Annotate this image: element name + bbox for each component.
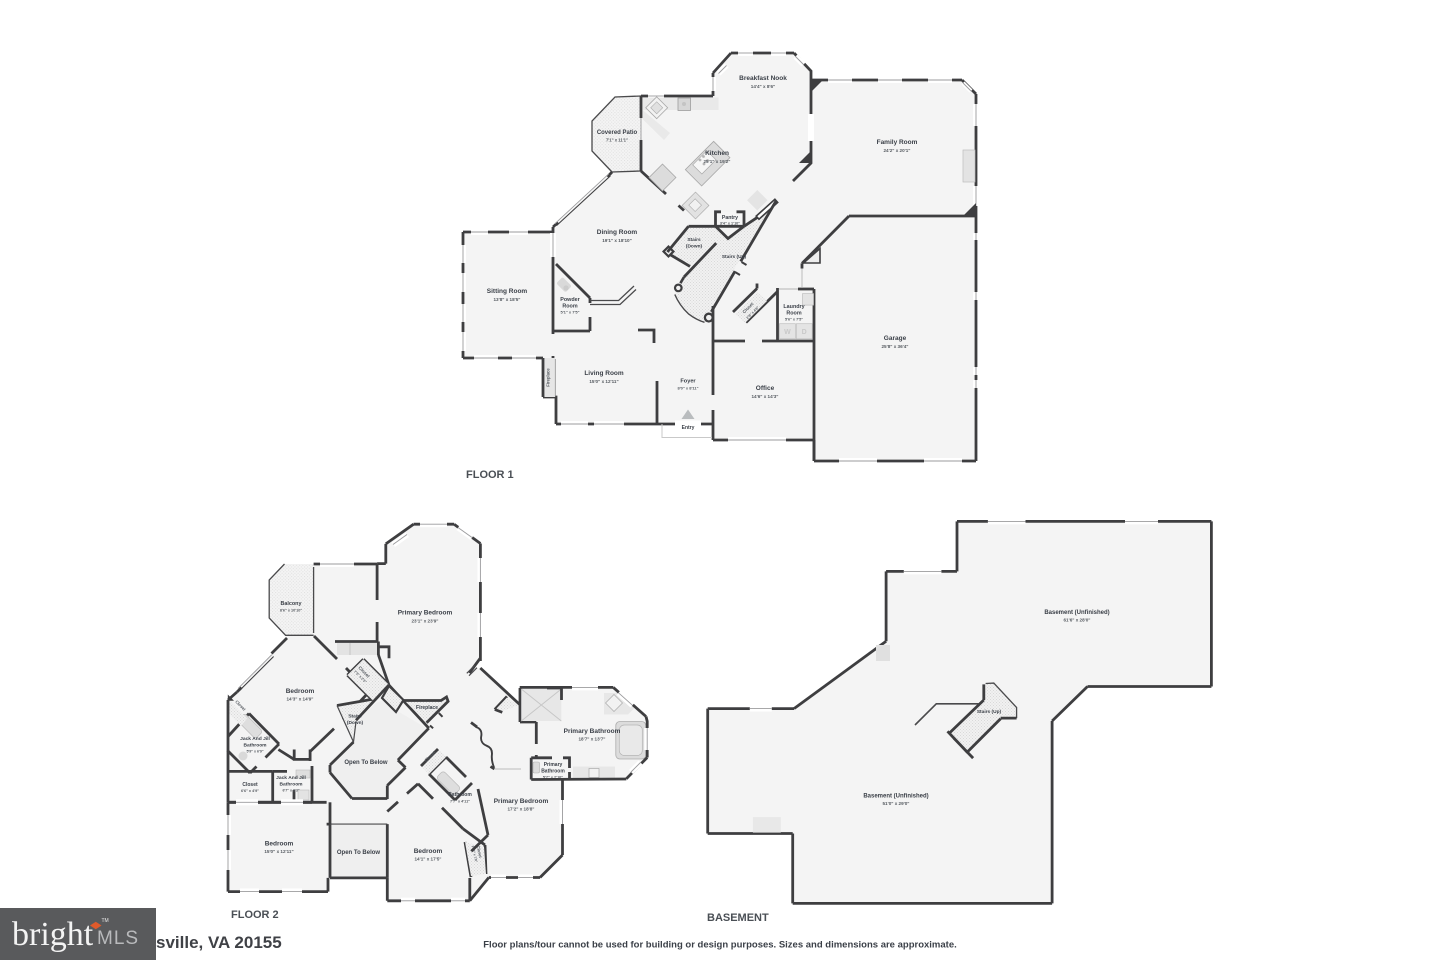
svg-text:Balcony: Balcony — [281, 601, 302, 607]
svg-text:Closet: Closet — [242, 782, 258, 788]
svg-text:8'6" x 10'10": 8'6" x 10'10" — [280, 609, 302, 613]
svg-text:Powder: Powder — [560, 297, 580, 303]
svg-text:7'1" x 11'1": 7'1" x 11'1" — [606, 138, 628, 143]
svg-text:Primary Bathroom: Primary Bathroom — [564, 728, 621, 735]
svg-text:Pantry: Pantry — [722, 215, 738, 221]
svg-text:Open To Below: Open To Below — [337, 850, 381, 856]
svg-text:23'1" x 23'9": 23'1" x 23'9" — [412, 619, 439, 624]
svg-text:5'6" x 7'5": 5'6" x 7'5" — [785, 318, 803, 322]
svg-text:Dining Room: Dining Room — [597, 229, 638, 236]
svg-text:14'1" x 17'5": 14'1" x 17'5" — [415, 857, 442, 862]
svg-text:Bathroom: Bathroom — [279, 782, 303, 788]
svg-text:5'1" x 7'5": 5'1" x 7'5" — [560, 310, 579, 315]
svg-text:MLS: MLS — [97, 928, 139, 949]
svg-text:Laundry: Laundry — [783, 304, 804, 310]
svg-text:Family Room: Family Room — [877, 139, 918, 146]
svg-text:3'4" x 1'10": 3'4" x 1'10" — [720, 222, 740, 226]
svg-text:Fireplace: Fireplace — [546, 368, 551, 387]
svg-text:19'1" x 18'10": 19'1" x 18'10" — [602, 238, 632, 243]
svg-text:61'6" x 28'0": 61'6" x 28'0" — [1064, 618, 1091, 623]
svg-text:(Down): (Down) — [686, 244, 703, 250]
svg-text:Basement (Unfinished): Basement (Unfinished) — [1044, 610, 1109, 616]
svg-text:14'3" x 14'9": 14'3" x 14'9" — [287, 697, 314, 702]
svg-text:6'7" x 8'3": 6'7" x 8'3" — [282, 789, 299, 793]
svg-text:14'4" x 8'6": 14'4" x 8'6" — [751, 84, 775, 89]
svg-text:Room: Room — [786, 311, 801, 317]
svg-text:6'6" x 4'9": 6'6" x 4'9" — [241, 789, 259, 793]
svg-text:TM: TM — [102, 918, 109, 924]
svg-text:Bedroom: Bedroom — [414, 848, 443, 855]
svg-text:Primary Bedroom: Primary Bedroom — [494, 798, 549, 805]
svg-text:bright: bright — [12, 916, 94, 953]
svg-text:Jack And Jill: Jack And Jill — [276, 775, 306, 781]
svg-text:51'0" x 29'0": 51'0" x 29'0" — [883, 801, 910, 806]
svg-text:Bathroom: Bathroom — [541, 769, 565, 775]
svg-text:Open To Below: Open To Below — [344, 760, 388, 766]
svg-text:Primary: Primary — [544, 762, 563, 768]
svg-text:25'1" x 19'2": 25'1" x 19'2" — [704, 159, 731, 164]
svg-text:Primary Bedroom: Primary Bedroom — [398, 610, 453, 617]
svg-text:D: D — [802, 329, 807, 336]
svg-text:Entry: Entry — [682, 425, 695, 431]
svg-text:Bedroom: Bedroom — [265, 841, 294, 848]
svg-text:Kitchen: Kitchen — [705, 150, 729, 157]
svg-text:Stairs: Stairs — [348, 714, 362, 720]
svg-text:Stairs (Up): Stairs (Up) — [977, 709, 1002, 715]
svg-text:15'0" x 12'11": 15'0" x 12'11" — [589, 379, 618, 384]
svg-text:Living Room: Living Room — [584, 370, 624, 377]
svg-text:Floor plans/tour cannot be use: Floor plans/tour cannot be used for buil… — [483, 940, 957, 951]
svg-text:Foyer: Foyer — [680, 379, 696, 385]
svg-text:5'9" x 6'9": 5'9" x 6'9" — [246, 750, 263, 754]
svg-text:Basement (Unfinished): Basement (Unfinished) — [863, 794, 928, 800]
svg-text:Bathroom: Bathroom — [448, 792, 472, 798]
svg-text:BASEMENT: BASEMENT — [707, 912, 769, 924]
svg-text:sville, VA 20155: sville, VA 20155 — [156, 933, 282, 952]
svg-text:Office: Office — [756, 385, 775, 392]
svg-text:Garage: Garage — [884, 335, 907, 342]
svg-text:7'7" x 4'11": 7'7" x 4'11" — [450, 800, 470, 804]
svg-text:(Down): (Down) — [347, 720, 364, 726]
svg-text:W: W — [784, 329, 791, 336]
svg-text:15'0" x 12'11": 15'0" x 12'11" — [264, 849, 293, 854]
svg-text:24'2" x 20'1": 24'2" x 20'1" — [884, 148, 911, 153]
svg-text:Breakfast Nook: Breakfast Nook — [739, 75, 787, 82]
svg-text:Stairs: Stairs — [687, 237, 701, 243]
svg-text:Sitting Room: Sitting Room — [487, 288, 528, 295]
svg-text:Fireplace: Fireplace — [416, 705, 438, 711]
svg-text:Stairs (Up): Stairs (Up) — [722, 254, 747, 260]
svg-text:Bathroom: Bathroom — [243, 743, 267, 749]
svg-text:25'8" x 36'4": 25'8" x 36'4" — [882, 344, 909, 349]
svg-text:FLOOR 2: FLOOR 2 — [231, 909, 279, 921]
svg-text:17'2" x 18'8": 17'2" x 18'8" — [508, 807, 535, 812]
svg-text:FLOOR 1: FLOOR 1 — [466, 469, 514, 481]
svg-text:Covered Patio: Covered Patio — [597, 130, 638, 136]
svg-text:13'8" x 18'5": 13'8" x 18'5" — [494, 297, 521, 302]
svg-text:8'0" x 8'11": 8'0" x 8'11" — [677, 386, 698, 391]
svg-text:Bedroom: Bedroom — [286, 688, 315, 695]
svg-text:Jack And Jill: Jack And Jill — [240, 736, 270, 742]
svg-text:18'7" x 13'7": 18'7" x 13'7" — [579, 737, 606, 742]
svg-text:14'6" x 14'3": 14'6" x 14'3" — [752, 394, 779, 399]
